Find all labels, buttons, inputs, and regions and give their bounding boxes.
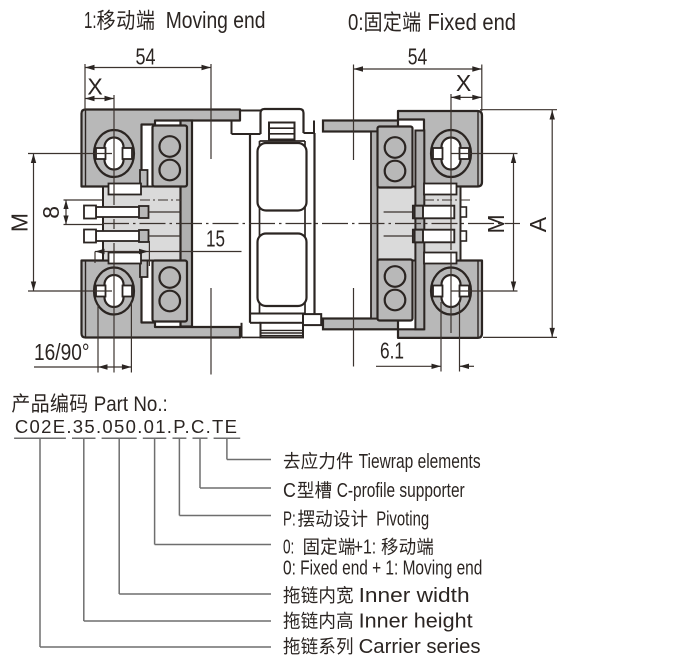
- svg-text:X: X: [456, 70, 471, 96]
- svg-text:Inner width: Inner width: [359, 585, 470, 607]
- svg-text:A: A: [525, 216, 551, 232]
- svg-text:M: M: [483, 214, 509, 233]
- svg-text:Tiewrap elements: Tiewrap elements: [359, 451, 481, 473]
- svg-text:+1:: +1:: [354, 537, 377, 559]
- svg-text:Part No.:: Part No.:: [94, 392, 168, 416]
- svg-text:C: C: [283, 480, 296, 502]
- svg-text:C02E.35.050.01.P.C.TE: C02E.35.050.01.P.C.TE: [15, 416, 238, 437]
- svg-text:15: 15: [206, 226, 225, 252]
- svg-text:Carrier series: Carrier series: [359, 636, 481, 658]
- svg-text:8: 8: [38, 206, 64, 219]
- svg-text:54: 54: [136, 44, 156, 70]
- svg-text:C-profile supporter: C-profile supporter: [337, 480, 465, 502]
- svg-text:X: X: [87, 74, 102, 100]
- svg-text:0: Fixed end + 1: Moving end: 0: Fixed end + 1: Moving end: [283, 558, 482, 580]
- svg-text:Inner height: Inner height: [359, 611, 473, 633]
- svg-text:P:: P:: [283, 509, 296, 531]
- svg-text:6.1: 6.1: [380, 338, 404, 364]
- svg-text:Fixed end: Fixed end: [428, 9, 517, 35]
- svg-text:Pivoting: Pivoting: [376, 509, 429, 531]
- svg-text:M: M: [7, 213, 33, 232]
- svg-text:0:: 0:: [283, 537, 294, 559]
- svg-text:Moving end: Moving end: [166, 7, 266, 33]
- svg-text:16/90°: 16/90°: [34, 339, 90, 365]
- svg-text:0:: 0:: [348, 9, 364, 35]
- svg-text:54: 54: [408, 44, 428, 70]
- svg-text:1:: 1:: [84, 7, 97, 33]
